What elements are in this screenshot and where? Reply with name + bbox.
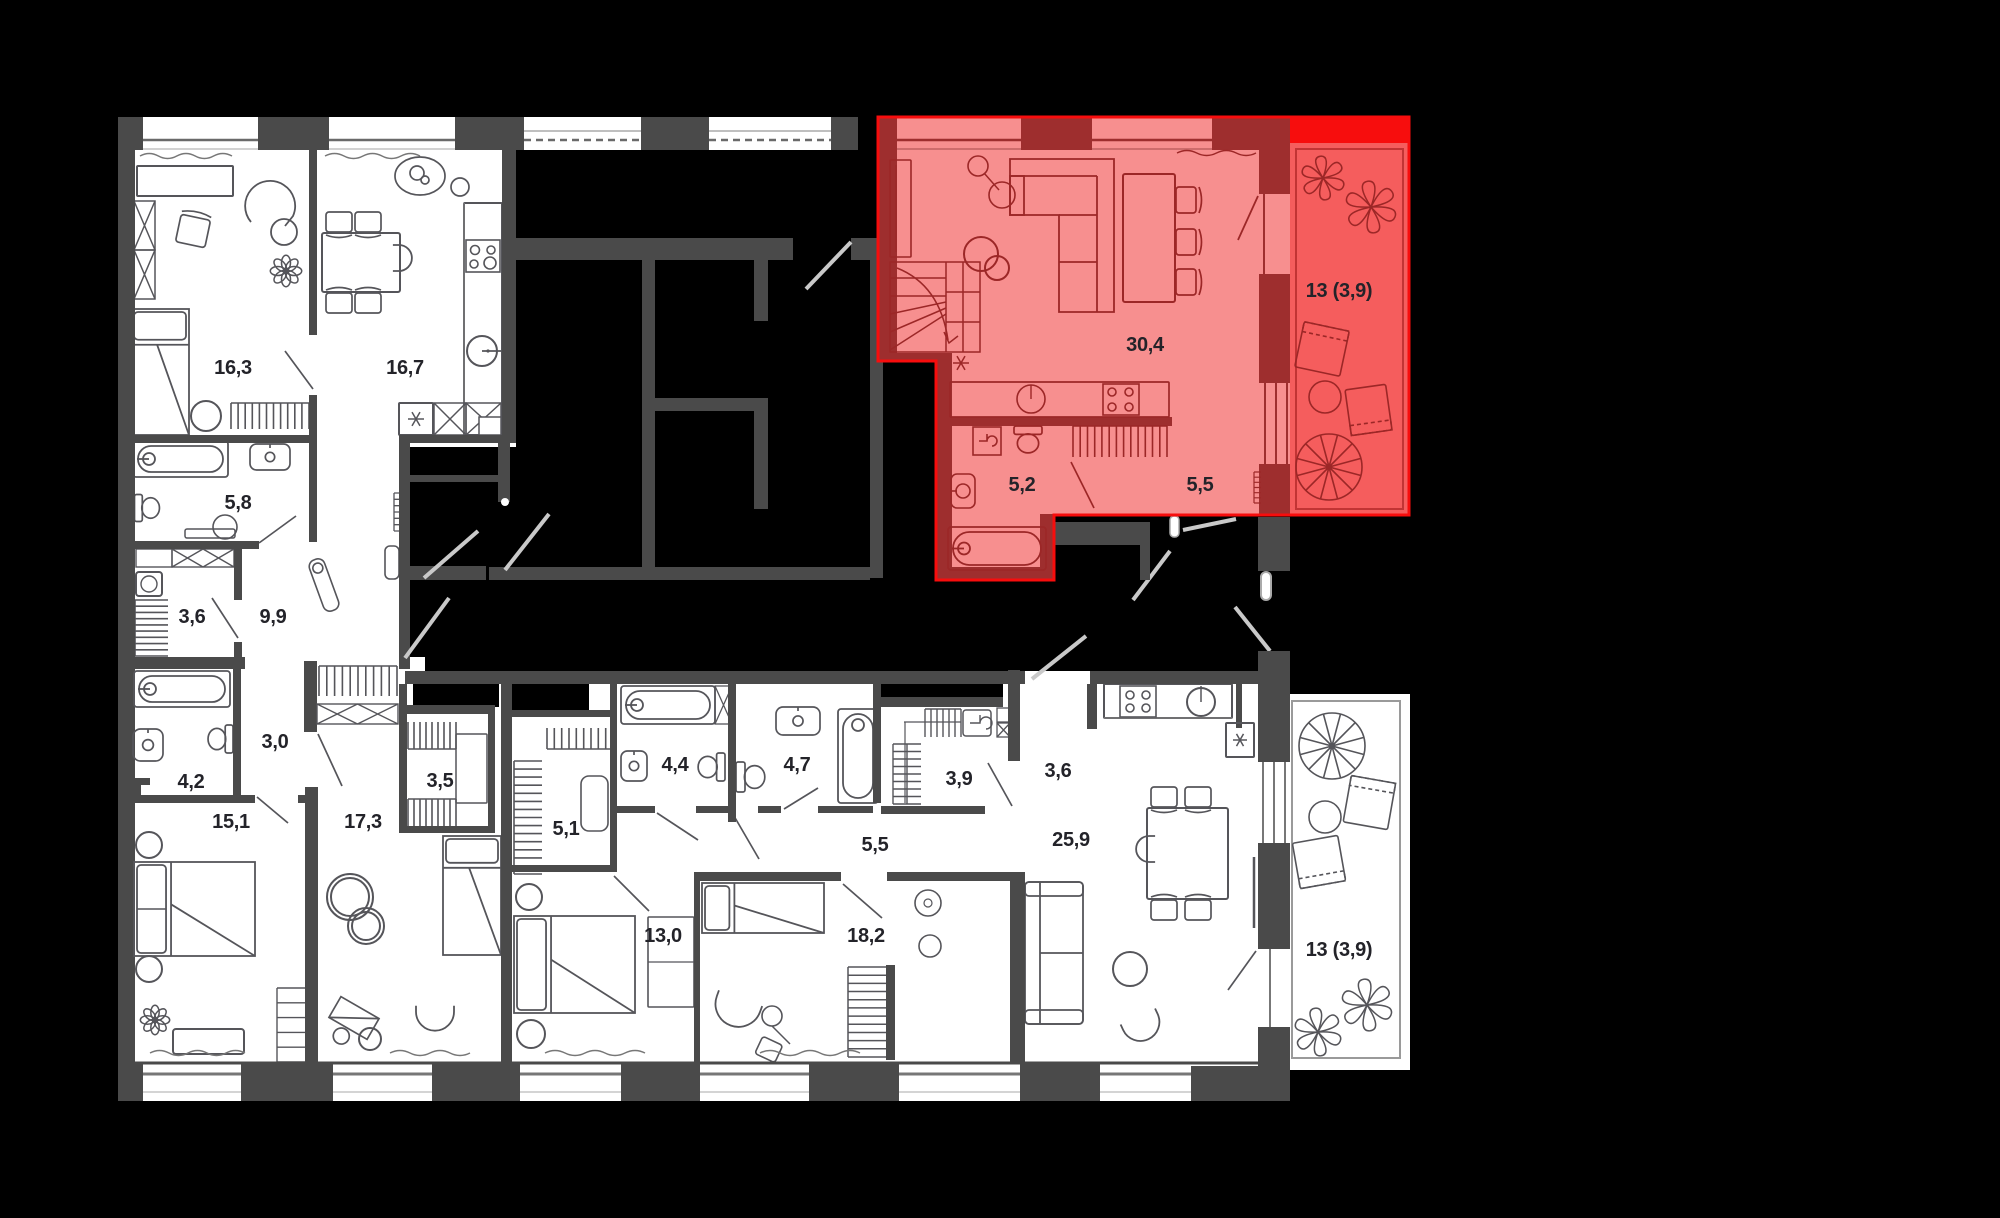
svg-text:4,7: 4,7: [784, 754, 811, 776]
svg-text:15,1: 15,1: [212, 811, 250, 833]
svg-text:5,2: 5,2: [1009, 474, 1036, 496]
svg-text:4,4: 4,4: [662, 754, 690, 776]
svg-text:5,1: 5,1: [553, 818, 580, 840]
svg-text:9,9: 9,9: [260, 606, 287, 628]
svg-text:3,0: 3,0: [262, 731, 289, 753]
svg-text:17,3: 17,3: [344, 811, 382, 833]
svg-text:5,5: 5,5: [862, 834, 889, 856]
svg-text:13,0: 13,0: [644, 925, 682, 947]
svg-text:3,6: 3,6: [1045, 760, 1072, 782]
svg-text:13 (3,9): 13 (3,9): [1306, 280, 1373, 302]
svg-text:18,2: 18,2: [847, 925, 885, 947]
svg-text:3,5: 3,5: [427, 770, 454, 792]
svg-text:5,5: 5,5: [1187, 474, 1214, 496]
svg-text:16,3: 16,3: [214, 357, 252, 379]
svg-text:30,4: 30,4: [1126, 334, 1165, 356]
svg-text:3,9: 3,9: [946, 768, 973, 790]
svg-text:4,2: 4,2: [178, 771, 205, 793]
svg-text:25,9: 25,9: [1052, 829, 1090, 851]
svg-text:16,7: 16,7: [386, 357, 424, 379]
svg-text:3,6: 3,6: [179, 606, 206, 628]
svg-text:13 (3,9): 13 (3,9): [1306, 939, 1373, 961]
svg-text:5,8: 5,8: [225, 492, 252, 514]
